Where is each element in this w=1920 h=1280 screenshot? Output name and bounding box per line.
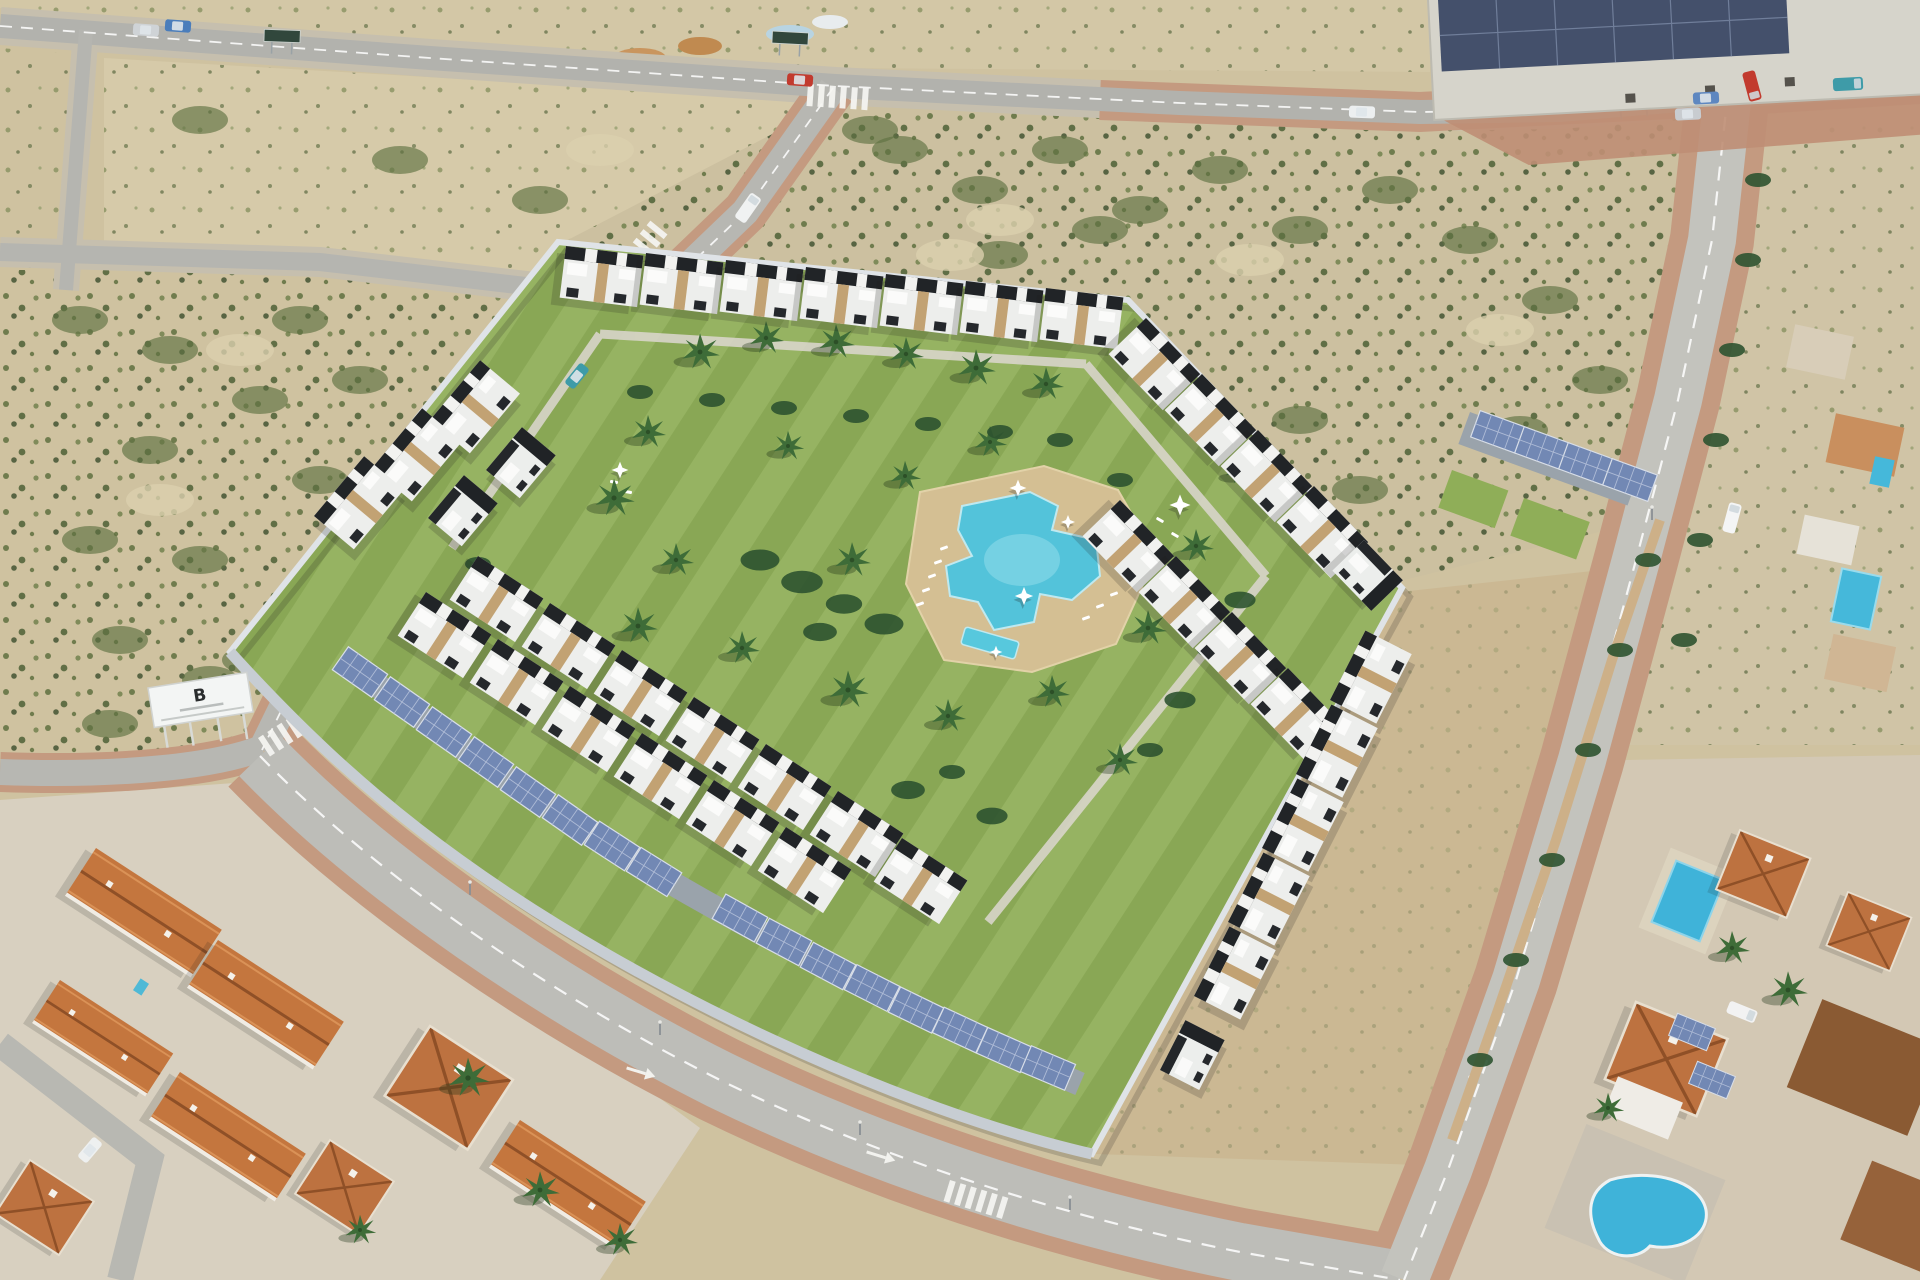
scrub-patch xyxy=(272,306,328,334)
roadside-tree xyxy=(1735,253,1761,267)
scrub-patch xyxy=(1572,366,1628,394)
scrub-patch xyxy=(1192,156,1248,184)
scrub-patch xyxy=(172,546,228,574)
aerial-photo: B xyxy=(0,0,1920,1280)
shrub xyxy=(1137,743,1163,757)
shrub xyxy=(1635,553,1661,567)
scrub-patch xyxy=(1362,176,1418,204)
townhouse xyxy=(791,266,884,336)
material-pile xyxy=(812,15,848,29)
sand-patch xyxy=(1216,244,1284,276)
scrub-patch xyxy=(1032,136,1088,164)
scrub-patch xyxy=(82,710,138,738)
scrub-patch xyxy=(1442,226,1498,254)
shrub xyxy=(1107,473,1133,487)
shrub xyxy=(976,808,1007,825)
scrub-patch xyxy=(52,306,108,334)
scrub-patch xyxy=(122,436,178,464)
scrub-patch xyxy=(1072,216,1128,244)
pool-highlight xyxy=(984,534,1060,586)
scrub-patch xyxy=(512,186,568,214)
scrub-patch xyxy=(1112,196,1168,224)
scrub-patch xyxy=(1522,286,1578,314)
shrub xyxy=(1539,853,1565,867)
shrub xyxy=(865,614,904,635)
shrub xyxy=(1607,643,1633,657)
shrub xyxy=(1047,433,1073,447)
car-silver xyxy=(1675,107,1702,120)
truck-teal xyxy=(1833,77,1864,92)
car-red xyxy=(787,73,814,87)
shrub xyxy=(843,409,869,423)
shrub xyxy=(781,571,823,593)
scrub-patch xyxy=(952,176,1008,204)
shrub xyxy=(741,550,780,571)
shrub xyxy=(915,417,941,431)
shrub xyxy=(939,765,965,779)
scrub-patch xyxy=(142,336,198,364)
shrub xyxy=(1503,953,1529,967)
shrub xyxy=(1164,692,1195,709)
shrub xyxy=(987,425,1013,439)
scrub-patch xyxy=(1332,476,1388,504)
sand-patch xyxy=(566,134,634,166)
roadside-tree xyxy=(1671,633,1697,647)
scrub-patch xyxy=(842,116,898,144)
dirt-mound xyxy=(678,37,722,55)
townhouse xyxy=(631,252,724,322)
roadside-tree xyxy=(1745,173,1771,187)
shrub xyxy=(1575,743,1601,757)
townhouse xyxy=(711,259,804,329)
shrub xyxy=(627,385,653,399)
scrub-patch xyxy=(1272,216,1328,244)
shrub xyxy=(826,594,862,614)
car-white xyxy=(1349,106,1375,119)
sand-patch xyxy=(1466,314,1534,346)
shrub xyxy=(1467,1053,1493,1067)
scrub-patch xyxy=(1272,406,1328,434)
townhouse xyxy=(951,280,1044,350)
shrub xyxy=(803,623,837,641)
roadside-tree xyxy=(1719,343,1745,357)
sand-patch xyxy=(206,334,274,366)
townhouse xyxy=(551,245,644,315)
car-blue xyxy=(1693,91,1720,104)
shrub xyxy=(891,781,925,799)
scrub-patch xyxy=(332,366,388,394)
loading-door xyxy=(1785,77,1795,87)
shrub xyxy=(699,393,725,407)
car-silver xyxy=(133,23,160,37)
roadside-tree xyxy=(1687,533,1713,547)
shrub xyxy=(1224,592,1255,609)
sand-patch xyxy=(126,484,194,516)
sand-patch xyxy=(916,239,984,271)
scrub-patch xyxy=(172,106,228,134)
scrub-patch xyxy=(92,626,148,654)
car-blue xyxy=(165,19,192,33)
sand-patch xyxy=(966,204,1034,236)
loading-door xyxy=(1625,93,1635,103)
townhouse xyxy=(871,273,964,343)
shrub xyxy=(771,401,797,415)
scrub-patch xyxy=(372,146,428,174)
scrub-patch xyxy=(62,526,118,554)
scrub-patch xyxy=(232,386,288,414)
roadside-tree xyxy=(1703,433,1729,447)
